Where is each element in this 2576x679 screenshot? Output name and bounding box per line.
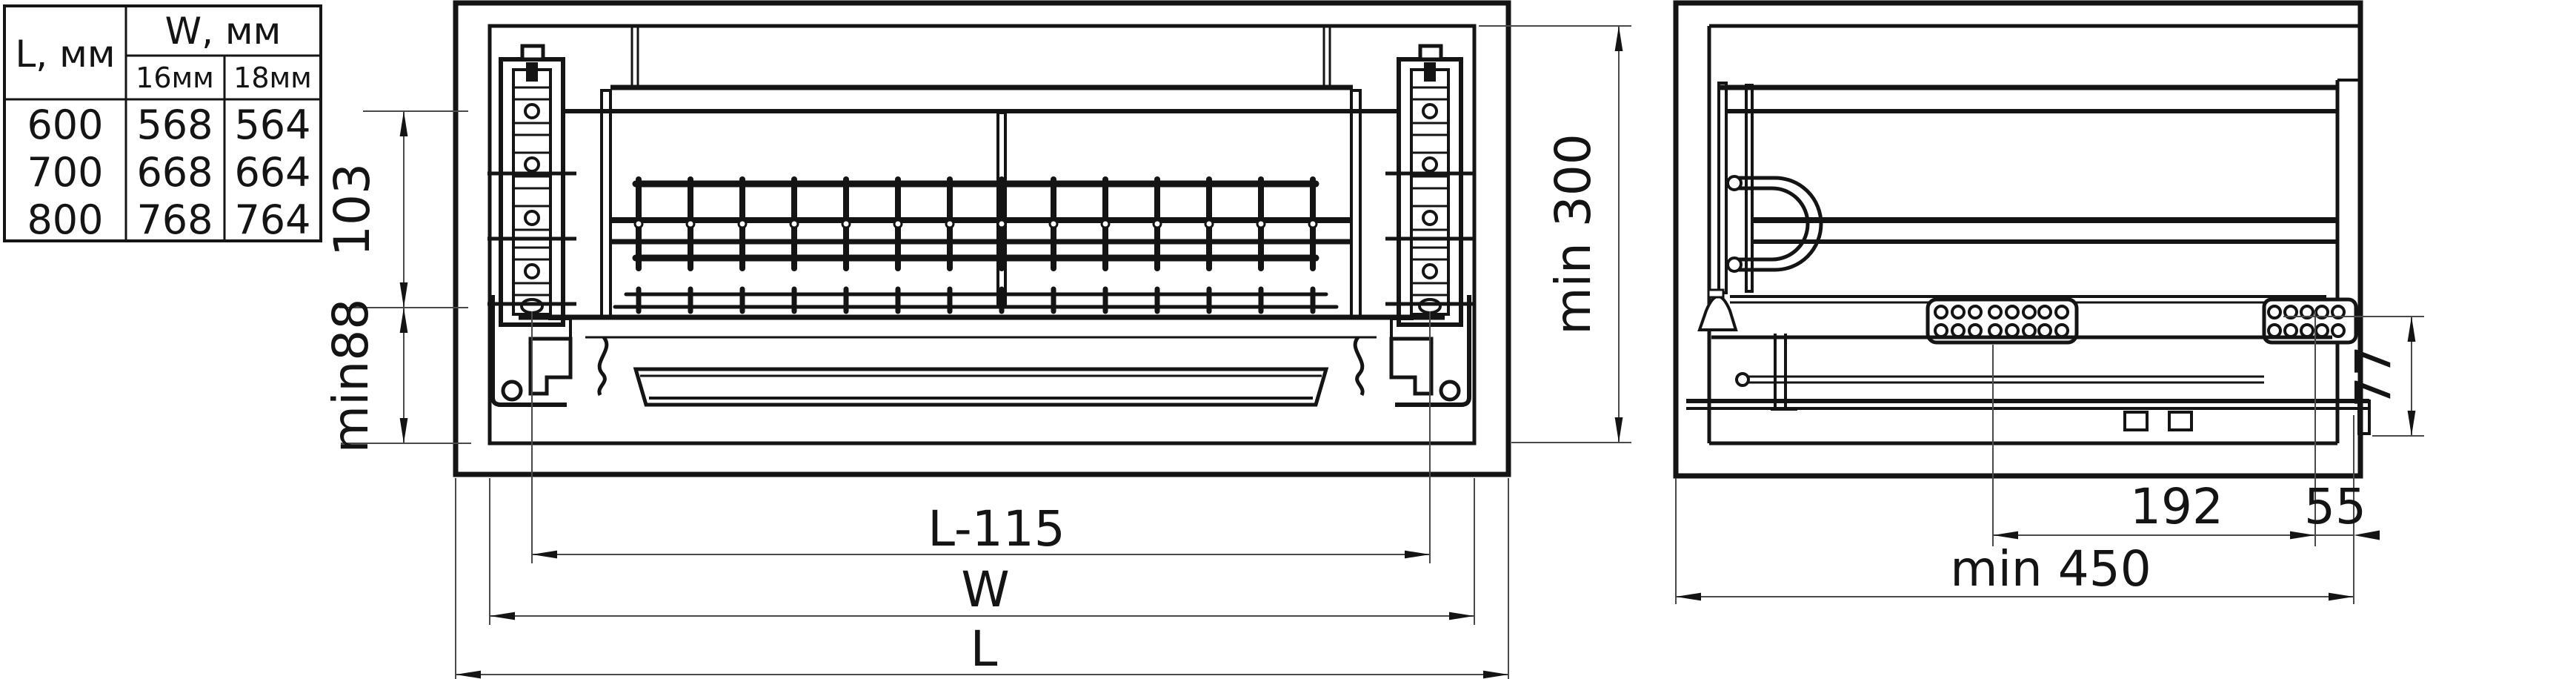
dim-77-label: 77	[2345, 345, 2402, 408]
left-bracket	[487, 46, 576, 325]
width16-value: 568	[136, 102, 213, 148]
width18-value: 564	[234, 102, 310, 148]
dim-min-450: min 450	[1676, 478, 2354, 604]
plate-divider-wire	[791, 179, 798, 311]
drawer-runner-assembly	[1686, 290, 2369, 434]
plate-divider-wire	[687, 179, 694, 311]
plate-divider-wire	[1154, 179, 1161, 311]
runner-foot	[2169, 412, 2191, 430]
plate-divider-wire	[946, 179, 953, 311]
plate-divider-wire	[635, 179, 642, 311]
plate-divider-wire	[894, 179, 902, 311]
front-frame-bar	[1719, 83, 1726, 293]
width16-value: 668	[136, 149, 213, 196]
dim-min-450-label: min 450	[1950, 540, 2151, 597]
plate-divider-wire	[1257, 179, 1265, 311]
drip-tray	[636, 369, 1326, 405]
right-upright	[1351, 90, 1360, 317]
width18-value: 664	[234, 149, 310, 196]
side-view	[1676, 3, 2369, 476]
dim-l-115: L-115	[532, 311, 1430, 563]
rack-side-profile	[1719, 83, 2337, 293]
dim-192-label: 192	[2130, 478, 2223, 535]
technical-drawing-page: L, мм W, мм 16мм 18мм 600 568 564 700 66…	[0, 0, 2576, 679]
dim-l-label: L	[971, 620, 998, 678]
dim-min-300: min 300	[1479, 26, 1631, 443]
front-view	[456, 3, 1508, 474]
dish-rack-drawing: L, мм W, мм 16мм 18мм 600 568 564 700 66…	[0, 0, 2576, 679]
wire-loop	[1728, 176, 1821, 271]
plate-divider-wire	[1102, 179, 1109, 311]
rack-frame	[502, 27, 1460, 317]
size-table: L, мм W, мм 16мм 18мм 600 568 564 700 66…	[4, 6, 321, 243]
width18-value: 764	[234, 196, 310, 243]
length-value: 800	[27, 196, 103, 243]
table-row: 800 768 764	[27, 196, 310, 243]
length-header: L, мм	[15, 33, 115, 76]
width16-value: 768	[136, 196, 213, 243]
plate-divider-wire	[1205, 179, 1213, 311]
length-value: 600	[27, 102, 103, 148]
plate-divider-wire	[998, 179, 1005, 311]
width-header: W, мм	[165, 10, 282, 53]
dim-l-115-label: L-115	[928, 500, 1065, 557]
runner-rod-end	[1737, 374, 1748, 385]
dim-103-label: 103	[324, 163, 381, 256]
plate-divider-wire	[1050, 179, 1057, 311]
table-row: 600 568 564	[27, 102, 310, 148]
dim-103: 103	[324, 111, 468, 308]
plate-divider-wire	[1309, 179, 1317, 311]
length-value: 700	[27, 149, 103, 196]
left-upright	[602, 90, 610, 317]
plate-divider-wire	[739, 179, 746, 311]
lower-basket	[519, 294, 1445, 337]
dim-w-label: W	[961, 561, 1009, 618]
plate-divider-wire	[842, 179, 850, 311]
dim-192: 192	[1993, 311, 2315, 546]
dim-min88: min88	[322, 299, 471, 453]
thickness-16-header: 16мм	[136, 62, 214, 94]
dim-min88-label: min88	[322, 299, 379, 453]
table-row: 700 668 664	[27, 149, 310, 196]
dim-min-300-label: min 300	[1545, 133, 1602, 334]
runner-foot	[2125, 412, 2147, 430]
dim-55-label: 55	[2304, 478, 2366, 535]
right-bracket	[1385, 46, 1474, 325]
plate-rack	[635, 179, 1317, 311]
thickness-18-header: 18мм	[233, 62, 312, 94]
